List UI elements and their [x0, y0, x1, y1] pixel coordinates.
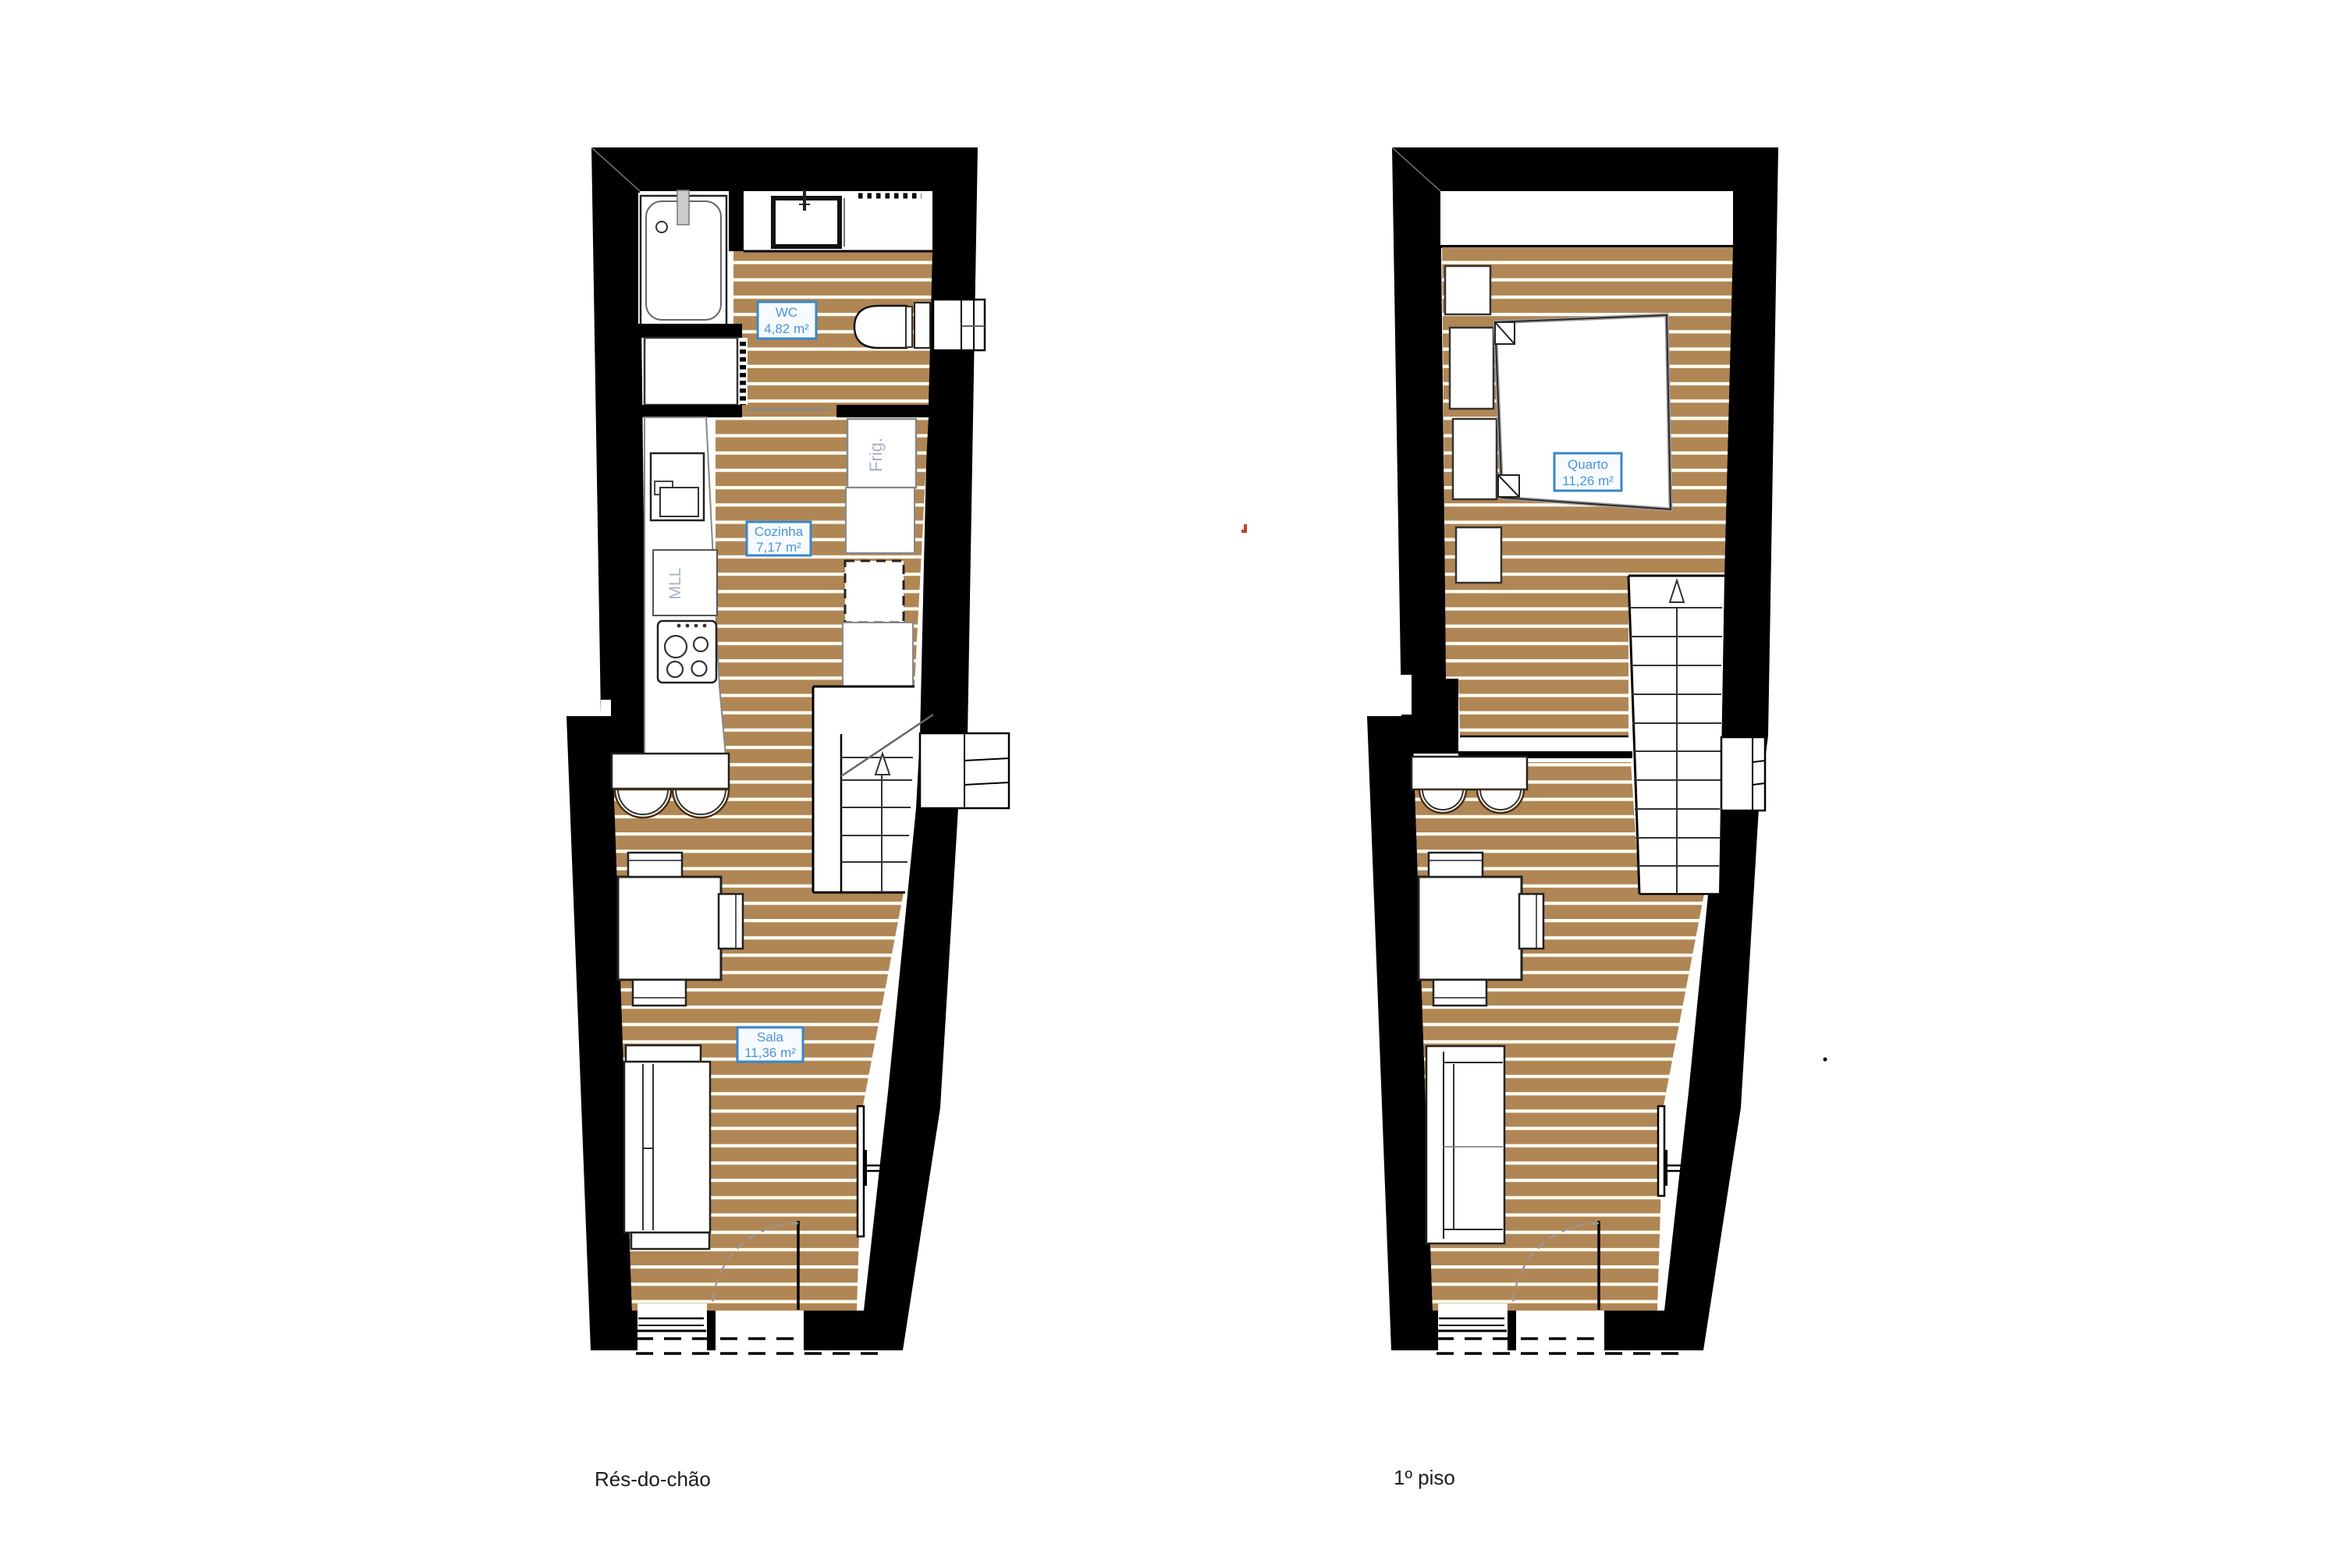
svg-text:1º piso: 1º piso — [1394, 1466, 1455, 1489]
svg-text:11,26 m²: 11,26 m² — [1562, 474, 1614, 488]
svg-text:WC: WC — [776, 305, 797, 320]
svg-text:Rés-do-chão: Rés-do-chão — [595, 1467, 711, 1491]
svg-text:Cozinha: Cozinha — [755, 524, 804, 539]
svg-text:11,36 m²: 11,36 m² — [744, 1045, 796, 1060]
svg-text:Quarto: Quarto — [1568, 457, 1608, 472]
svg-text:7,17 m²: 7,17 m² — [756, 540, 801, 555]
svg-text:MLL: MLL — [666, 568, 684, 600]
svg-text:Frig.: Frig. — [866, 438, 886, 472]
svg-text:Sala: Sala — [757, 1030, 784, 1045]
svg-text:4,82 m²: 4,82 m² — [764, 321, 809, 336]
